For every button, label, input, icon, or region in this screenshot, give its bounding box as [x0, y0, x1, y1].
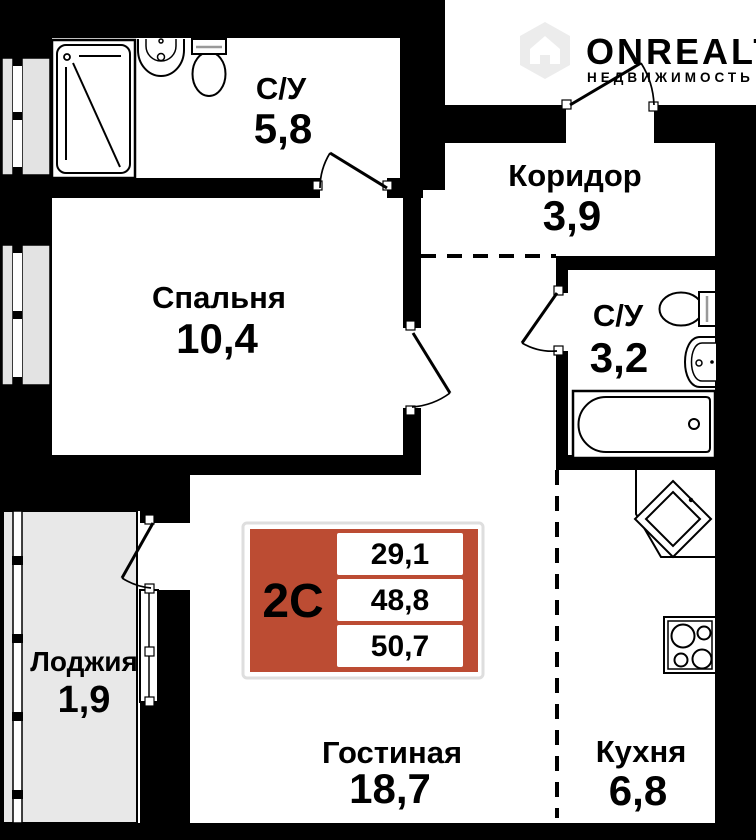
room-area-loggia: 1,9 — [58, 679, 111, 721]
area-badge: 2С 29,1 48,8 50,7 — [243, 523, 483, 678]
room-area-bedroom: 10,4 — [176, 315, 258, 362]
badge-value-1: 29,1 — [371, 538, 429, 571]
balcony-window — [140, 590, 158, 706]
badge-value-2: 48,8 — [371, 584, 429, 617]
badge-type-label: 2С — [262, 575, 323, 628]
stove-icon — [664, 617, 716, 673]
bathtub-icon — [573, 391, 715, 458]
room-area-kitchen: 6,8 — [609, 767, 667, 814]
room-label-bedroom: Спальня — [152, 280, 286, 315]
toilet-icon — [192, 39, 226, 96]
room-label-loggia: Лоджия — [30, 646, 138, 677]
bedroom-door-arc — [412, 333, 450, 407]
room-label-bathroom-1: С/У — [256, 71, 307, 106]
room-label-corridor: Коридор — [508, 158, 641, 193]
onrealt-logo: ONREALT НЕДВИЖИМОСТЬ — [520, 22, 756, 85]
room-area-bathroom-2: 3,2 — [590, 334, 648, 381]
bathroom-door-arc — [320, 153, 387, 188]
room-area-corridor: 3,9 — [543, 192, 601, 239]
floor-plan-canvas: ONREALT НЕДВИЖИМОСТЬ — [0, 0, 756, 840]
room-label-kitchen: Кухня — [596, 734, 687, 769]
floor-plan: ONREALT НЕДВИЖИМОСТЬ — [0, 0, 756, 840]
bathroom-window — [2, 58, 50, 175]
room-area-living: 18,7 — [349, 765, 431, 812]
loggia-window — [12, 511, 23, 823]
washbasin-2-icon — [685, 337, 716, 387]
shower-icon — [52, 40, 135, 178]
logo-title: ONREALT — [586, 31, 756, 72]
washbasin-icon — [138, 39, 184, 76]
kitchen-sink-icon — [635, 470, 716, 557]
room-area-bathroom-1: 5,8 — [254, 105, 312, 152]
logo-subtitle: НЕДВИЖИМОСТЬ — [587, 70, 754, 85]
toilet-2-icon — [660, 292, 717, 326]
bedroom-window — [2, 245, 50, 385]
room-label-bathroom-2: С/У — [593, 298, 644, 333]
badge-value-3: 50,7 — [371, 630, 429, 663]
bathroom2-door-arc — [522, 293, 557, 351]
